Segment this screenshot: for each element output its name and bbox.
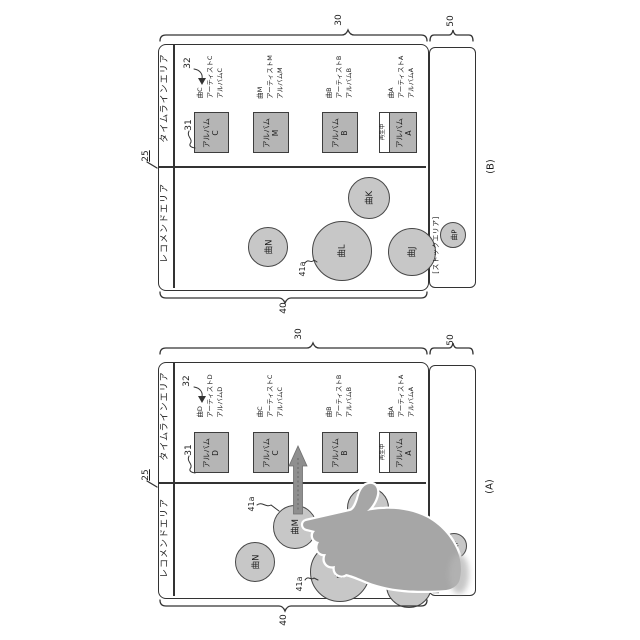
recommend-area-label: レコメンドエリア (160, 500, 172, 576)
song-circle-label: 曲K (362, 501, 374, 515)
album-label: アルバム B (331, 116, 349, 150)
song-circle-l[interactable]: 曲L (310, 542, 370, 602)
timeline-area-label: タイムラインエリア (160, 56, 172, 140)
song-info-label: 曲M アーティストM アルバムM (256, 52, 286, 102)
figure-caption-a: (A) (484, 474, 497, 500)
song-circle-label: 曲J (403, 579, 415, 590)
ref-31-label: 31 (184, 441, 196, 459)
now-playing-badge: 再生中 (380, 442, 388, 462)
song-circle-label: 曲N (249, 555, 261, 570)
ref-40-label: 40 (279, 611, 291, 629)
ref-41a-label: 41a (246, 493, 258, 515)
ref-30-label: 30 (294, 325, 306, 343)
album-thumbnail-a-playing[interactable]: 再生中 アルバム A (379, 432, 417, 473)
brace-40-icon (160, 292, 427, 303)
ref-50-label: 50 (446, 12, 458, 30)
song-circle-label: 曲P (448, 230, 458, 241)
stock-area-label: [ストックエリア] (431, 212, 441, 278)
ref-25-label: 25 (141, 147, 153, 165)
song-info-label: 曲D アーティストD アルバムD (196, 371, 226, 421)
ref-32-label: 32 (182, 372, 194, 390)
album-thumbnail-b[interactable]: アルバム B (322, 112, 358, 153)
now-playing-badge: 再生中 (380, 122, 388, 142)
stock-song-circle-p[interactable]: 曲P (440, 222, 466, 248)
album-label: アルバム A (395, 436, 413, 470)
ref-32-label: 32 (183, 54, 195, 72)
song-circle-n[interactable]: 曲N (248, 227, 288, 267)
song-info-label: 曲A アーティストA アルバムA (387, 52, 417, 102)
brace-50-icon (430, 30, 473, 41)
patent-figure: タイムラインエリア レコメンドエリア 曲C アーティストC アルバムC 曲M ア… (0, 0, 640, 640)
album-thumbnail-b[interactable]: アルバム B (322, 432, 358, 473)
brace-30-icon (160, 30, 427, 41)
song-circle-k[interactable]: 曲K (348, 177, 390, 219)
song-circle-n[interactable]: 曲N (235, 542, 275, 582)
figure-caption-b: (B) (485, 154, 498, 180)
area-divider-b (159, 166, 426, 168)
song-circle-label: 曲K (363, 191, 375, 205)
song-circle-j[interactable]: 曲J (386, 562, 432, 608)
song-circle-label: 曲L (336, 244, 348, 257)
ref-50-label: 50 (446, 331, 458, 349)
stock-song-circle-p[interactable]: 曲P (441, 533, 467, 559)
now-playing-strip: 再生中 (380, 113, 390, 152)
song-circle-k[interactable]: 曲K (347, 487, 389, 529)
ref-25-label: 25 (141, 466, 153, 484)
album-label: アルバム M (262, 116, 280, 150)
label-strip-divider-a (173, 363, 175, 596)
song-circle-label: 曲J (406, 246, 418, 257)
ref-41a-label: 41a (294, 573, 306, 595)
ref-30-label: 30 (334, 11, 346, 29)
song-info-label: 曲B アーティストB アルバムB (325, 52, 355, 102)
ref-31-label: 31 (184, 116, 196, 134)
stock-area-label: [ストックエリア] (431, 532, 441, 598)
song-info-label: 曲C アーティストC アルバムC (256, 371, 286, 421)
album-thumbnail-a-playing[interactable]: 再生中 アルバム A (379, 112, 417, 153)
song-circle-label: 曲L (334, 565, 346, 578)
album-thumbnail-c[interactable]: アルバム C (194, 112, 229, 153)
brace-40-icon (160, 600, 427, 611)
song-circle-j[interactable]: 曲J (388, 228, 436, 276)
song-circle-m-dragged[interactable]: 曲M (273, 505, 317, 549)
album-thumbnail-c[interactable]: アルバム C (253, 432, 289, 473)
song-info-label: 曲B アーティストB アルバムB (325, 371, 355, 421)
timeline-area-label: タイムラインエリア (160, 374, 172, 458)
album-label: アルバム A (395, 116, 413, 150)
album-label: アルバム B (331, 436, 349, 470)
song-info-label: 曲A アーティストA アルバムA (387, 371, 417, 421)
song-circle-label: 曲M (289, 519, 301, 535)
album-label: アルバム C (202, 116, 220, 150)
song-circle-label: 曲N (262, 240, 274, 255)
song-info-label: 曲C アーティストC アルバムC (196, 52, 226, 102)
recommend-area-label: レコメンドエリア (160, 185, 172, 261)
ref-41a-label: 41a (297, 258, 309, 280)
album-label: アルバム C (262, 436, 280, 470)
ref-40-label: 40 (279, 299, 291, 317)
song-circle-l[interactable]: 曲L (312, 221, 372, 281)
album-label: アルバム D (202, 436, 220, 470)
song-circle-label: 曲P (449, 541, 459, 552)
album-thumbnail-m[interactable]: アルバム M (253, 112, 289, 153)
album-thumbnail-d[interactable]: アルバム D (194, 432, 229, 473)
now-playing-strip: 再生中 (380, 433, 390, 472)
area-divider-a (159, 482, 426, 484)
brace-30-icon (160, 343, 427, 354)
